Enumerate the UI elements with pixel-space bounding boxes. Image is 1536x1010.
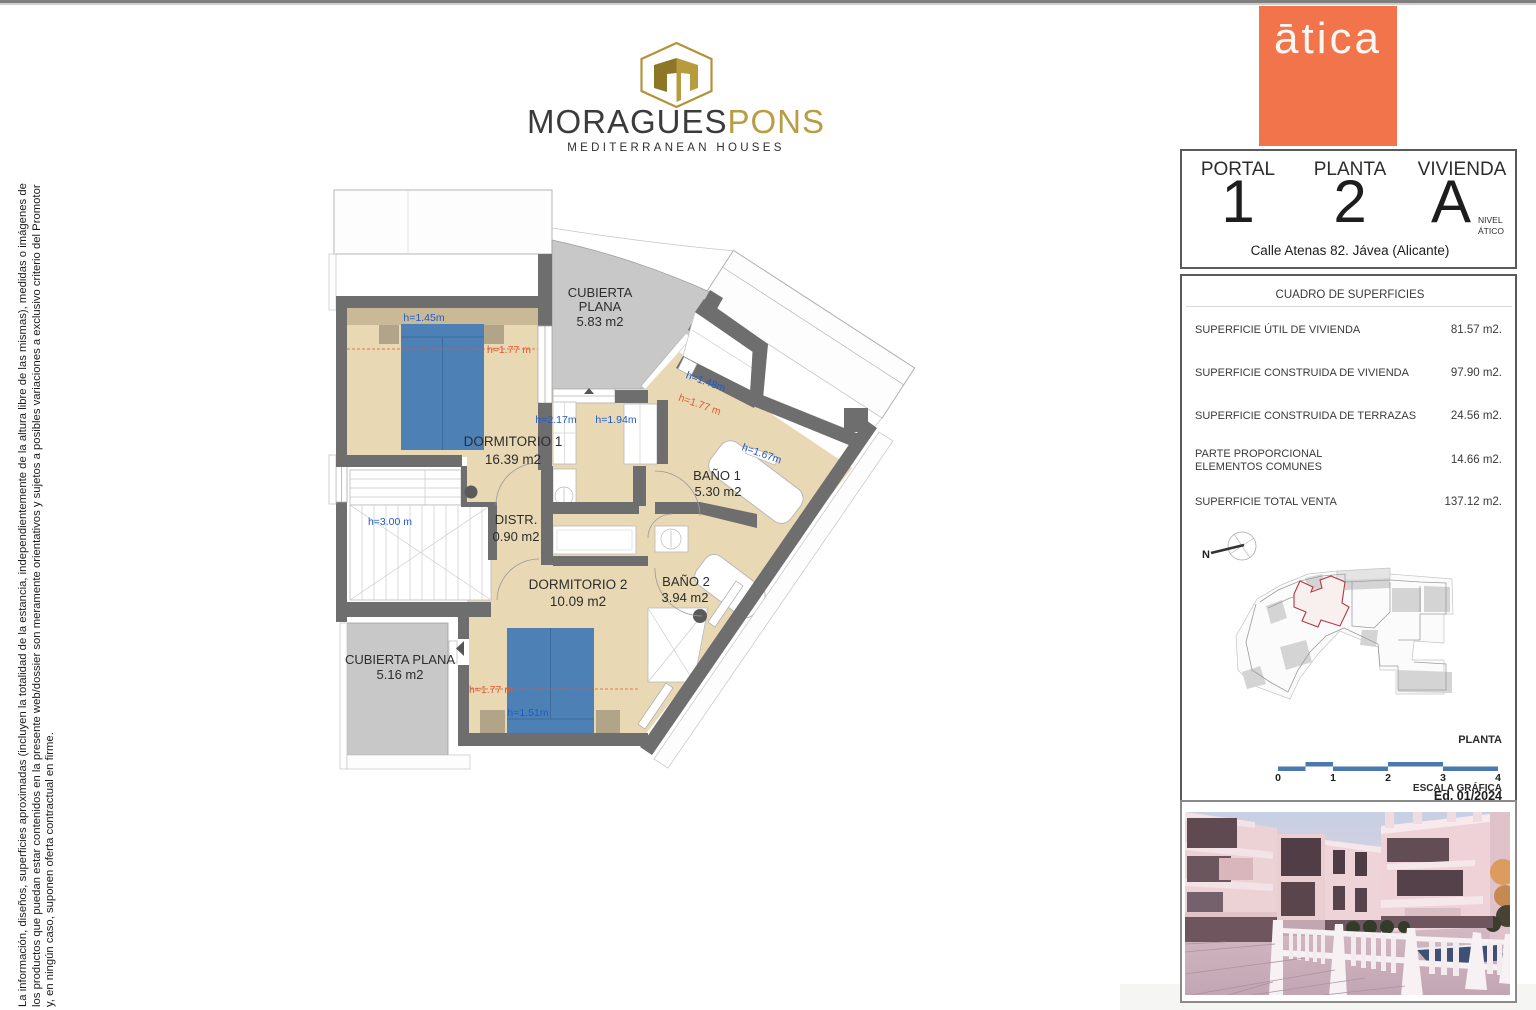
svg-text:0: 0 — [1275, 772, 1281, 784]
svg-text:3.94 m2: 3.94 m2 — [662, 590, 709, 605]
svg-text:5.83 m2: 5.83 m2 — [577, 314, 624, 329]
svg-text:N: N — [1202, 549, 1210, 561]
svg-text:PLANA: PLANA — [579, 299, 622, 314]
svg-text:5.16 m2: 5.16 m2 — [377, 667, 424, 682]
svg-text:CUBIERTA: CUBIERTA — [568, 285, 633, 300]
svg-text:10.09 m2: 10.09 m2 — [550, 594, 606, 609]
svg-text:h=1.77 m: h=1.77 m — [469, 684, 513, 696]
svg-text:DISTR.: DISTR. — [495, 512, 538, 527]
svg-text:5.30 m2: 5.30 m2 — [695, 484, 742, 499]
svg-text:h=1.94m: h=1.94m — [595, 414, 636, 426]
svg-text:0.90 m2: 0.90 m2 — [493, 529, 540, 544]
svg-text:h=1.51m: h=1.51m — [507, 707, 548, 719]
svg-text:h=3.00 m: h=3.00 m — [368, 516, 412, 528]
svg-text:16.39 m2: 16.39 m2 — [485, 452, 541, 467]
svg-text:DORMITORIO 1: DORMITORIO 1 — [464, 434, 563, 449]
svg-text:BAÑO 2: BAÑO 2 — [662, 574, 710, 589]
svg-text:h=1.45m: h=1.45m — [403, 312, 444, 324]
svg-text:BAÑO 1: BAÑO 1 — [693, 468, 741, 483]
svg-text:h=1.77 m: h=1.77 m — [487, 344, 531, 356]
svg-text:1: 1 — [1330, 772, 1336, 784]
svg-text:DORMITORIO 2: DORMITORIO 2 — [529, 577, 628, 592]
svg-text:CUBIERTA PLANA: CUBIERTA PLANA — [345, 652, 455, 667]
svg-text:h=2.17m: h=2.17m — [535, 414, 576, 426]
